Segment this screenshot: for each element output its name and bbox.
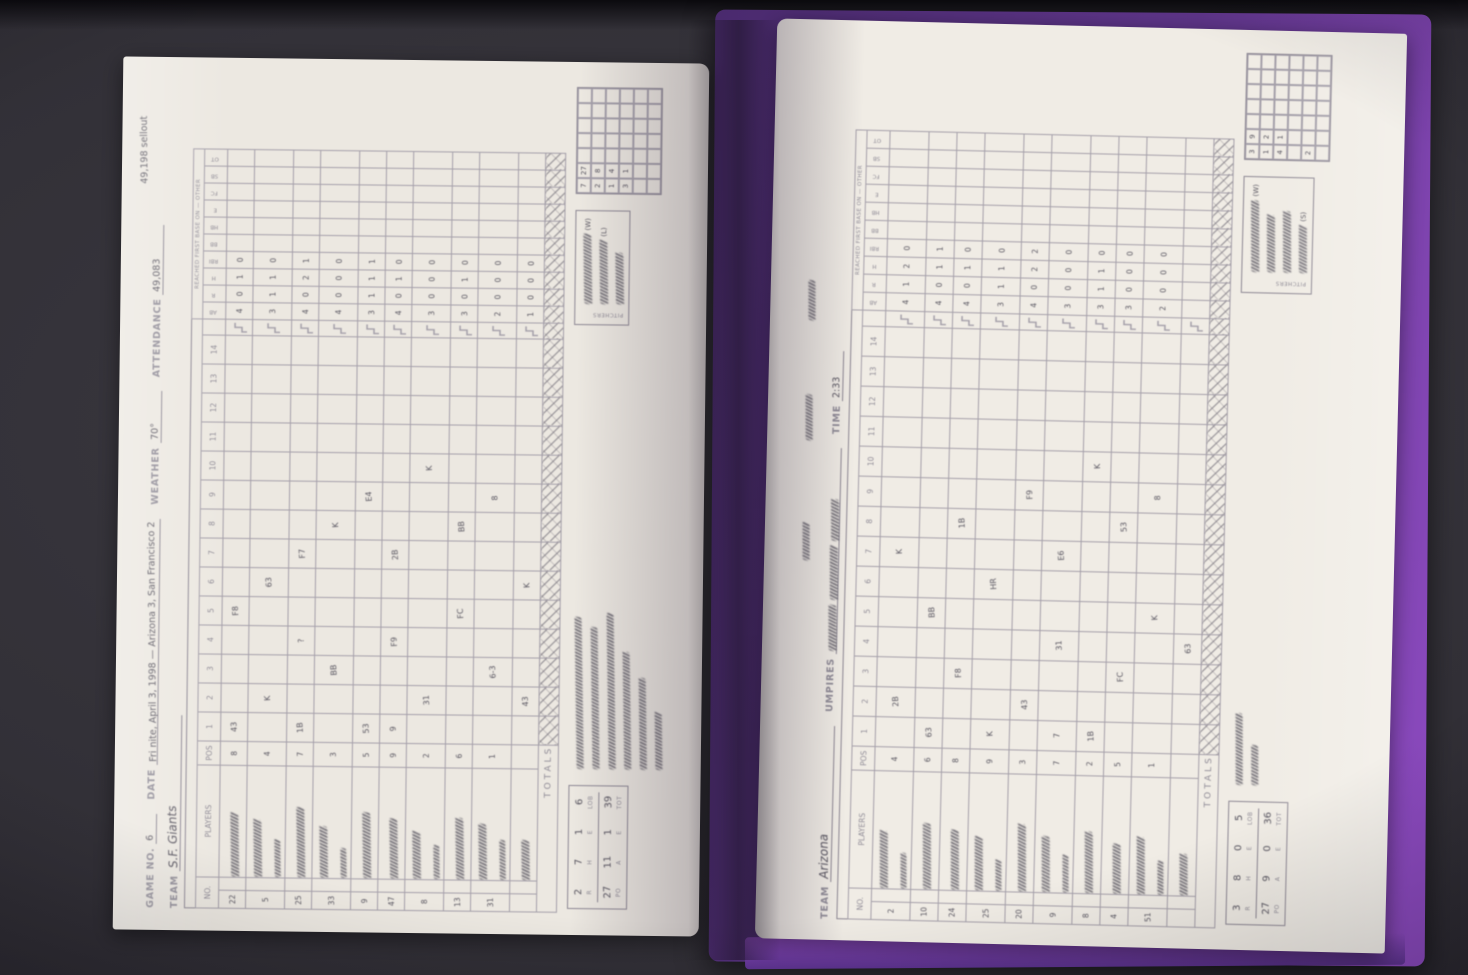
stat-cell (227, 166, 254, 183)
printed-step-glyph (490, 323, 505, 336)
header-field: TEAMS.F. Giants (165, 715, 182, 908)
pitcher-line: (W) (1250, 184, 1260, 273)
inning-cell (382, 482, 409, 511)
handwriting-scribble (1283, 210, 1291, 274)
pos-cell: 4 (247, 741, 286, 765)
mini-grid-cell (1315, 131, 1329, 146)
inning-mark: K (263, 695, 272, 701)
stat-cell (293, 218, 320, 235)
pitcher-lines: (W)(L) (580, 218, 624, 305)
inning-cell (885, 327, 925, 358)
stat-value: 1 (235, 268, 245, 284)
pos-cell: 7 (1036, 751, 1076, 776)
handwriting-scribble (901, 852, 907, 889)
pitcher-line (1266, 184, 1276, 273)
stat-value: 0 (935, 276, 944, 293)
player-name-cell (939, 772, 970, 891)
inning-cell (978, 389, 1018, 420)
stat-header-text: OT (873, 137, 881, 143)
inning-cell (287, 684, 314, 713)
summary-cell: 11A (602, 852, 622, 872)
inning-cell: 8 (1138, 483, 1178, 514)
player-number: 31 (485, 893, 495, 910)
mini-grid-cell (1247, 84, 1261, 99)
pitcher-lines: (W)(S) (1247, 184, 1308, 274)
stat-cell (983, 187, 1022, 206)
inning-cell (409, 511, 448, 540)
inning-cell (448, 482, 475, 511)
inning-cell (1011, 630, 1040, 661)
pos-cell: 2 (1075, 751, 1104, 776)
inning-cell (1141, 363, 1181, 394)
mini-grid-cell: 9 (1245, 129, 1259, 144)
stat-cell: 0 (982, 241, 1021, 260)
stat-cell (954, 222, 982, 241)
inning-header-2: 2 (198, 682, 221, 711)
handwriting-scribble (1267, 214, 1275, 274)
stat-header-text: SB (873, 155, 880, 161)
mini-grid-cell (620, 88, 634, 103)
inning-cell (943, 688, 972, 719)
inning-cell (409, 482, 448, 511)
inning-cell (450, 337, 477, 366)
stat-cell (1089, 190, 1117, 209)
handwriting-scribble (230, 811, 239, 877)
stat-header-OT: OT (205, 148, 228, 165)
inning-cell (408, 598, 447, 627)
summary-row-bottom: 27PO9A0E36TOT (1260, 809, 1283, 919)
sub-cell (510, 880, 537, 893)
stat-cell: 1 (358, 286, 385, 303)
stat-cell (478, 237, 517, 254)
summary-value: 39 (603, 795, 615, 808)
mini-grid-cell (1274, 100, 1288, 115)
stat-value: 0 (460, 254, 470, 270)
stat-value: 1 (935, 258, 944, 275)
pos-value: 5 (361, 743, 371, 766)
inning-cell (354, 626, 381, 655)
stat-value: 0 (526, 289, 536, 305)
totals-hatched-cell (1204, 515, 1225, 545)
inning-header-5: 5 (199, 595, 222, 624)
stat-value: 4 (901, 294, 910, 311)
pitcher-decision: (W) (584, 218, 592, 230)
inning-cell (289, 481, 316, 510)
player-name-cell (471, 768, 511, 880)
inning-cell: BB (314, 655, 353, 684)
inning-cell (222, 567, 249, 596)
stat-cell: 0 (412, 253, 451, 270)
team-label: TEAM (819, 886, 831, 919)
inning-cell (251, 422, 290, 451)
inning-cell (1045, 391, 1085, 422)
inning-cell (1047, 331, 1087, 362)
summary-label: R (586, 889, 593, 894)
inning-cell (1107, 602, 1136, 633)
stat-header-R: R (203, 284, 226, 301)
stat-cell (1116, 226, 1144, 245)
player-number-cell: 47 (377, 892, 404, 910)
stat-cell (413, 168, 452, 185)
stat-value: 0 (1125, 281, 1134, 298)
inning-cell (250, 480, 289, 509)
totals-hatched-cell (1212, 211, 1232, 229)
stat-cell (452, 185, 479, 202)
inning-cell (474, 628, 513, 657)
stat-header-AB: AB (863, 292, 886, 311)
inning-cell: F9 (1015, 480, 1044, 511)
stat-cell (889, 149, 928, 168)
stat-cell (1145, 209, 1184, 228)
stat-header-text: BB (871, 227, 879, 233)
inning-mark: 53 (361, 723, 371, 734)
stat-value: 0 (1159, 264, 1168, 281)
stat-cell: 4 (886, 293, 925, 312)
player-number-cell: 5 (245, 890, 284, 908)
totals-hatched-cell (542, 426, 562, 455)
player-name-cell (967, 773, 1009, 892)
totals-hatched-cell (1206, 455, 1227, 485)
inning-cell (918, 538, 947, 569)
stat-value: 4 (962, 295, 971, 312)
handwriting-scribble (923, 822, 931, 890)
totals-hatched-cell (538, 716, 558, 745)
inning-cell (383, 424, 410, 453)
inning-cell (884, 357, 924, 388)
totals-hatched-cell (1212, 193, 1232, 211)
step-cell (291, 320, 318, 336)
summary-value: 27 (602, 885, 614, 898)
handwriting-scribble (1236, 712, 1243, 786)
stat-cell (518, 169, 545, 186)
totals-hatched-cell (543, 323, 563, 339)
stat-header-E: E (204, 199, 227, 216)
mini-grid-cell (1303, 70, 1317, 85)
player-name-cell (378, 767, 406, 879)
inning-header-1: 1 (198, 711, 221, 740)
handwriting-scribble (639, 677, 647, 771)
inning-cell (1180, 364, 1209, 395)
stat-value: 2 (1030, 243, 1039, 260)
inning-cell (355, 539, 382, 568)
inning-cell (1176, 514, 1205, 545)
summary-cell: 1E (603, 822, 623, 842)
stat-header-BB: BB (203, 233, 226, 250)
stat-cell: 2 (1143, 299, 1182, 318)
inning-cell (290, 394, 317, 423)
inning-cell (1113, 362, 1142, 393)
inning-header-4: 4 (854, 626, 878, 657)
pos-cell (511, 744, 538, 768)
pos-value: 1 (1146, 754, 1156, 777)
mini-grid-cell (634, 88, 648, 103)
sub-cell (1005, 892, 1033, 906)
stat-value: 0 (460, 288, 470, 304)
stat-cell: 1 (926, 258, 954, 277)
mini-grid-cell (633, 163, 647, 178)
totals-hatched-cell (544, 306, 564, 323)
pos-value (524, 745, 525, 768)
totals-hatched-cell (539, 658, 559, 687)
player-number: 8 (1081, 907, 1090, 924)
stat-cell: 4 (226, 302, 253, 319)
stat-cell (1022, 188, 1050, 207)
mini-grid-cell (605, 133, 619, 148)
inning-cell (410, 395, 449, 424)
pos-header: POS (197, 740, 220, 764)
player-number-cell: 51 (1128, 908, 1167, 927)
stat-value: 0 (1125, 245, 1134, 262)
stat-value: 4 (393, 304, 403, 320)
mini-grid-cell (619, 118, 633, 133)
handwriting-scribble (615, 251, 624, 305)
stat-cell (1118, 172, 1146, 191)
inning-cell: K (1135, 603, 1175, 634)
stat-cell (888, 185, 927, 204)
step-cell (924, 312, 952, 329)
mini-grid-cell (1287, 145, 1301, 160)
pos-cell: 3 (313, 742, 352, 766)
stat-cell (227, 200, 254, 217)
inning-cell (445, 714, 472, 743)
stat-cell (1022, 206, 1050, 225)
inning-cell (315, 597, 354, 626)
inning-cell (1114, 332, 1143, 363)
blank-line: Arizona (816, 726, 835, 882)
inning-cell (380, 656, 407, 685)
stat-cell (1182, 300, 1210, 319)
handwriting-scribble (830, 545, 838, 601)
inning-cell (1172, 664, 1201, 695)
pos-value: 3 (1018, 751, 1028, 774)
inning-cell (919, 508, 948, 539)
summary-label: PO (1274, 904, 1281, 914)
inning-cell: FC (447, 598, 474, 627)
inning-cell (248, 654, 287, 683)
inning-cell (223, 538, 250, 567)
stat-cell (386, 219, 413, 236)
mini-grid-cell (577, 133, 591, 148)
player-name-cell (872, 771, 914, 890)
inning-cell: 53 (352, 713, 379, 742)
mini-grid-cell (633, 178, 647, 193)
stat-cell (293, 184, 320, 201)
pos-value: 8 (951, 749, 961, 772)
stat-value: 1 (901, 276, 910, 293)
left-scoresheet: 49,198 selloutGAME NO.6DATEFri nite, Apr… (132, 77, 694, 916)
stat-cell (453, 151, 480, 168)
stat-cell (1050, 207, 1089, 226)
stat-cell: 1 (292, 252, 319, 269)
mini-grid-cell (1315, 146, 1329, 161)
stat-cell: 0 (1020, 278, 1048, 297)
pitcher-line (615, 218, 624, 304)
stat-cell: 0 (226, 285, 253, 302)
inning-mark: F8 (231, 605, 241, 615)
inning-cell (924, 328, 953, 359)
stat-cell: 0 (451, 287, 478, 304)
step-cell (1086, 316, 1114, 333)
stat-cell (889, 167, 928, 186)
stat-value: 0 (1030, 279, 1039, 296)
inning-cell (476, 396, 515, 425)
inning-mark: K (985, 732, 994, 738)
summary-cell: 7H (573, 852, 593, 872)
handwriting-scribble (975, 836, 983, 892)
stat-header-text: FC (873, 173, 880, 179)
totals-hatched-cell (1202, 605, 1223, 635)
inning-cell (289, 510, 316, 539)
inning-cell: FC (1105, 662, 1134, 693)
step-cell (1019, 314, 1047, 331)
inning-cell (949, 448, 978, 479)
stat-cell: 0 (412, 287, 451, 304)
handwriting-scribble (340, 847, 346, 878)
inning-cell (356, 394, 383, 423)
stat-value: 0 (427, 271, 437, 287)
pos-value: 6 (923, 748, 933, 771)
stat-cell (320, 184, 359, 201)
stat-cell (480, 152, 519, 169)
inning-cell: 1B (947, 508, 976, 539)
inning-cell (1104, 722, 1133, 753)
player-number-cell: 24 (938, 903, 966, 922)
stat-value: 1 (367, 270, 377, 286)
inning-cell (315, 626, 354, 655)
stat-cell: 0 (1144, 245, 1183, 264)
player-name-cell (1006, 774, 1037, 893)
stat-value: 1 (1097, 280, 1106, 297)
header-field: TEAMArizona (815, 726, 835, 919)
handwriting-scribble (1085, 830, 1093, 894)
stat-cell: 0 (925, 276, 953, 295)
inning-cell (1009, 720, 1038, 751)
stat-cell (956, 168, 984, 187)
inning-cell (221, 683, 248, 712)
summary-value: 11 (602, 855, 614, 868)
pos-cell: 5 (1103, 752, 1132, 777)
handwriting-scribble (319, 825, 328, 879)
summary-divider (1255, 808, 1259, 918)
inning-cell: BB (448, 511, 475, 540)
stat-cell (1184, 192, 1212, 211)
step-cell (1114, 316, 1142, 333)
handwriting-scribble (1179, 853, 1187, 897)
stat-cell (254, 217, 293, 234)
stat-cell: 0 (887, 239, 926, 258)
inning-cell (879, 567, 919, 598)
summary-cell: 9A (1261, 869, 1281, 889)
printed-step-glyph (232, 320, 247, 333)
inning-cell (224, 422, 251, 451)
pos-value (1184, 755, 1185, 778)
step-col-header (862, 310, 885, 327)
pos-cell: 6 (445, 743, 472, 767)
stat-value: 3 (1124, 299, 1133, 316)
totals-hatched-cell (542, 455, 562, 484)
stat-cell: 1 (517, 305, 544, 322)
stat-cell: 0 (1049, 243, 1088, 262)
stat-cell (1051, 153, 1090, 172)
stat-cell: 2 (478, 305, 517, 322)
umpires-label: UMPIRES (824, 658, 836, 712)
inning-cell: F8 (222, 596, 249, 625)
inning-mark: 31 (422, 694, 432, 705)
inning-mark: BB (329, 664, 339, 675)
stat-header-FC: FC (866, 166, 889, 185)
summary-value: 3 (1232, 905, 1243, 912)
mini-grid-cell (1260, 99, 1274, 114)
summary-label: H (1245, 876, 1252, 881)
inning-cell (477, 338, 516, 367)
inning-cell (290, 423, 317, 452)
player-number: 47 (386, 892, 396, 909)
inning-cell (948, 478, 977, 509)
player-name-cell (1168, 778, 1199, 897)
inning-cell (356, 452, 383, 481)
player-number-cell (1167, 909, 1195, 928)
handwriting-scribble (575, 616, 584, 770)
stat-cell (1049, 225, 1088, 244)
inning-cell (921, 448, 950, 479)
mini-grid-cell (647, 148, 661, 163)
inning-cell (1012, 600, 1041, 631)
handwriting-scribble (951, 829, 959, 891)
inning-cell (384, 366, 411, 395)
inning-cell (382, 511, 409, 540)
totals-hatched-cell (544, 272, 564, 289)
inning-cell (406, 714, 445, 743)
mini-grid-cell (1288, 115, 1302, 130)
sub-cell (871, 889, 910, 903)
mini-grid-cell: 8 (591, 163, 605, 178)
step-cell (516, 322, 543, 338)
totals-hatched-cell (545, 170, 565, 187)
player-name-cell (351, 766, 379, 878)
summary-cell: 39TOT (603, 792, 623, 812)
player-name-cell (246, 765, 286, 877)
inning-cell (515, 396, 542, 425)
stat-cell: 0 (451, 253, 478, 270)
stat-cell (320, 201, 359, 218)
mini-grid-cell (578, 103, 592, 118)
totals-hatched-cell (1201, 634, 1222, 664)
sub-cell (966, 891, 1005, 905)
bottom-strip: 3R8H0E5LOB27PO9A0E36TOTPITCHERS(W)(S)391… (1225, 53, 1332, 927)
stat-header-text: FC (211, 188, 218, 194)
totals-hatched-cell (1205, 485, 1226, 515)
inning-cell (1044, 421, 1084, 452)
inning-cell: E4 (355, 481, 382, 510)
printed-step-glyph (331, 322, 346, 335)
handwriting-scribble (880, 829, 888, 889)
inning-cell (1178, 424, 1207, 455)
stat-value: 0 (526, 255, 536, 271)
totals-hatched-cell (540, 571, 560, 600)
summary-label: R (1245, 906, 1252, 911)
mini-grid-cell (605, 148, 619, 163)
stat-cell (927, 186, 955, 205)
stat-cell (1023, 170, 1051, 189)
inning-cell (357, 336, 384, 365)
stat-cell (984, 169, 1023, 188)
player-number-cell: 22 (218, 890, 245, 908)
inning-cell (411, 366, 450, 395)
pitchers-box: PITCHERS(W)(L) (574, 209, 630, 325)
stat-value: 0 (427, 254, 437, 270)
summary-value: 0 (1262, 845, 1273, 852)
summary-cell: 0E (1233, 838, 1253, 858)
